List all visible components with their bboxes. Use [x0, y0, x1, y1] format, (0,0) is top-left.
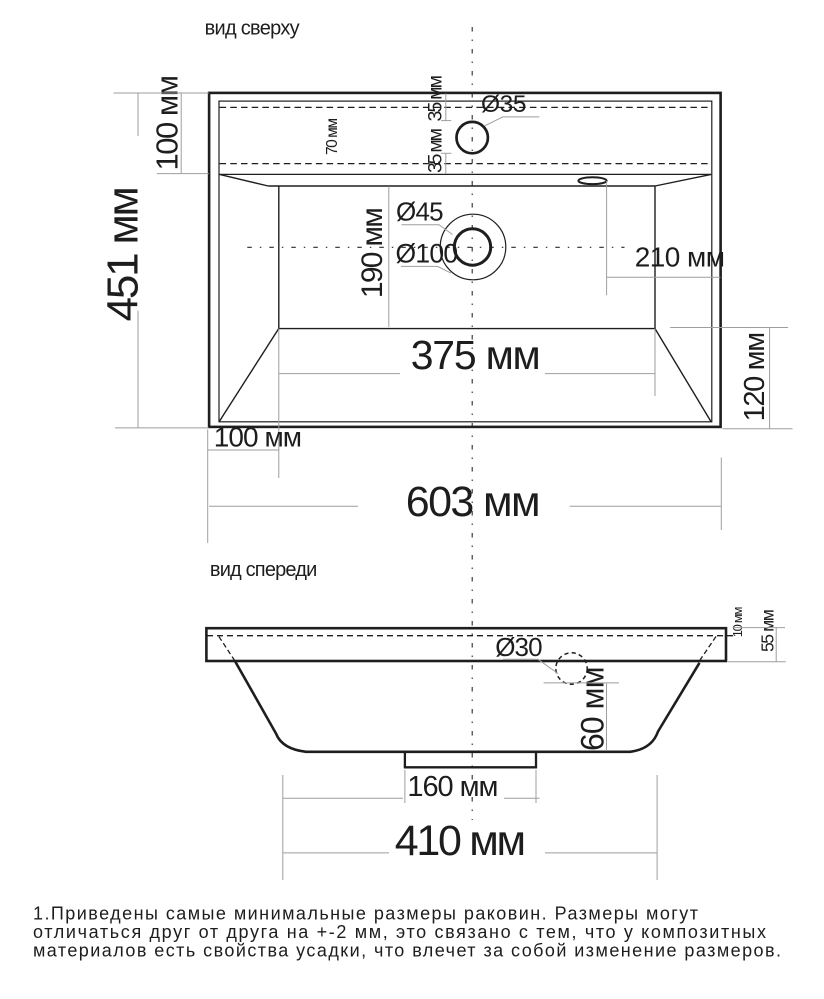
svg-text:190 мм: 190 мм: [356, 207, 389, 298]
svg-text:70 мм: 70 мм: [324, 118, 341, 155]
svg-text:1.Приведены самые минимальные: 1.Приведены самые минимальные размеры ра…: [33, 903, 698, 923]
svg-text:60 мм: 60 мм: [574, 666, 610, 751]
svg-text:451 мм: 451 мм: [99, 186, 148, 321]
svg-text:603 мм: 603 мм: [406, 478, 541, 526]
svg-text:410 мм: 410 мм: [395, 817, 526, 865]
svg-text:Ø45: Ø45: [396, 196, 444, 226]
svg-text:375 мм: 375 мм: [411, 332, 541, 378]
svg-text:35 мм: 35 мм: [424, 75, 446, 122]
svg-text:120 мм: 120 мм: [739, 332, 771, 422]
svg-text:вид спереди: вид спереди: [210, 559, 317, 581]
svg-text:материалов есть свойства усадк: материалов есть свойства усадки, что вле…: [33, 941, 781, 961]
svg-text:100 мм: 100 мм: [214, 422, 302, 453]
svg-text:210 мм: 210 мм: [635, 242, 725, 273]
svg-text:отличаться друг от друга на +-: отличаться друг от друга на +-2 мм, это …: [33, 922, 766, 942]
svg-text:100 мм: 100 мм: [149, 75, 184, 171]
svg-text:160 мм: 160 мм: [407, 771, 498, 803]
svg-text:55 мм: 55 мм: [758, 609, 778, 652]
svg-text:35 мм: 35 мм: [424, 128, 446, 173]
svg-text:вид сверху: вид сверху: [205, 18, 300, 40]
svg-text:Ø100: Ø100: [396, 239, 459, 269]
svg-text:Ø35: Ø35: [481, 91, 527, 118]
svg-text:Ø30: Ø30: [495, 632, 542, 662]
svg-text:10 мм: 10 мм: [730, 607, 745, 638]
